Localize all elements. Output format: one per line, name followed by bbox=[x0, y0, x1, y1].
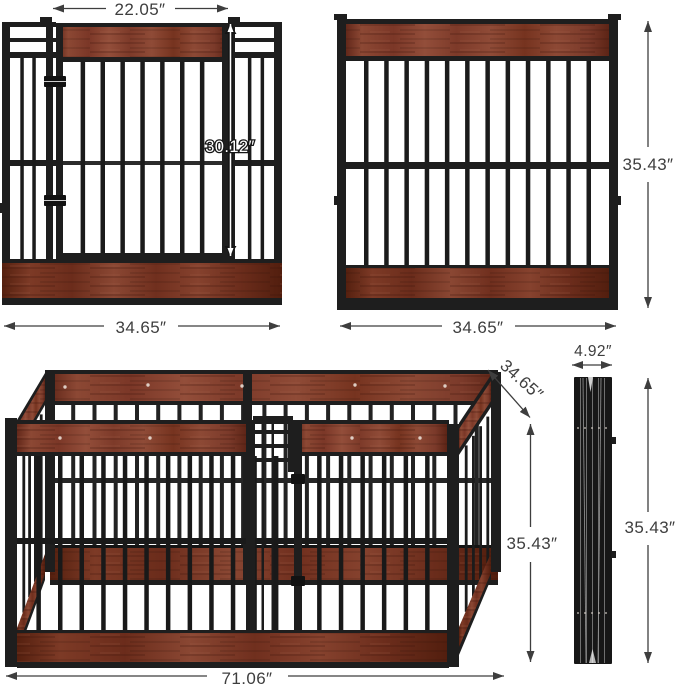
gate-panel-right-bars bbox=[248, 58, 264, 259]
gate-door-bars bbox=[81, 61, 205, 253]
pen-height-label: 35.43″ bbox=[507, 534, 558, 553]
plain-panel-height-dimension: 35.43″ bbox=[623, 21, 674, 308]
gate-door-width-dimension: 22.05″ bbox=[53, 0, 228, 19]
plain-panel-top-plank bbox=[346, 19, 609, 61]
plain-panel-height-label: 35.43″ bbox=[623, 155, 674, 174]
gate-door-width-label: 22.05″ bbox=[115, 0, 166, 19]
gate-panel-width-dimension: 34.65″ bbox=[4, 318, 280, 337]
pen-front-bottom-plank bbox=[17, 630, 449, 668]
pen-front-center-post bbox=[246, 420, 255, 667]
folded-stack-view: 4.92″ 35.43″ bbox=[572, 343, 675, 664]
pen-front-left-post bbox=[5, 418, 17, 667]
assembled-pen-view: 71.06″ 34.65″ 35.43″ bbox=[5, 356, 557, 688]
folded-height-dimension: 35.43″ bbox=[625, 378, 676, 663]
pen-depth-label: 34.65″ bbox=[496, 356, 547, 404]
plain-panel-width-dimension: 34.65″ bbox=[340, 318, 616, 337]
folded-thickness-dimension: 4.92″ bbox=[572, 343, 612, 365]
folded-stack-pegs bbox=[612, 437, 617, 558]
plain-panel-width-label: 34.65″ bbox=[453, 318, 504, 337]
pen-width-label: 71.06″ bbox=[222, 669, 273, 688]
diagram-canvas: 22.05″ 30.12″ 34.65″ bbox=[0, 0, 679, 693]
pen-width-dimension: 71.06″ bbox=[6, 669, 504, 688]
gate-door-height-label: 30.12″ bbox=[205, 138, 255, 156]
pen-front-wall bbox=[5, 418, 459, 668]
folded-thickness-label: 4.92″ bbox=[574, 343, 612, 360]
pen-front-right-post bbox=[447, 424, 459, 667]
plain-panel-mid-rail bbox=[346, 162, 609, 169]
gate-panel-bottom-plank bbox=[2, 259, 282, 305]
folded-stack-body bbox=[574, 377, 612, 664]
gate-panel-left-bars bbox=[20, 58, 36, 259]
pen-front-hinge-post bbox=[294, 424, 302, 632]
product-dimension-diagram: 22.05″ 30.12″ 34.65″ bbox=[0, 0, 679, 693]
folded-height-label: 35.43″ bbox=[625, 518, 676, 537]
gate-hinge-post bbox=[46, 22, 53, 262]
plain-panel-view: 35.43″ 34.65″ bbox=[334, 14, 673, 337]
pen-divider bbox=[253, 416, 294, 630]
gate-panel-view: 22.05″ 30.12″ 34.65″ bbox=[0, 0, 282, 337]
gate-panel-width-label: 34.65″ bbox=[116, 318, 167, 337]
plain-panel-bottom-plank bbox=[346, 265, 609, 305]
pen-height-dimension: 35.43″ bbox=[507, 424, 558, 662]
